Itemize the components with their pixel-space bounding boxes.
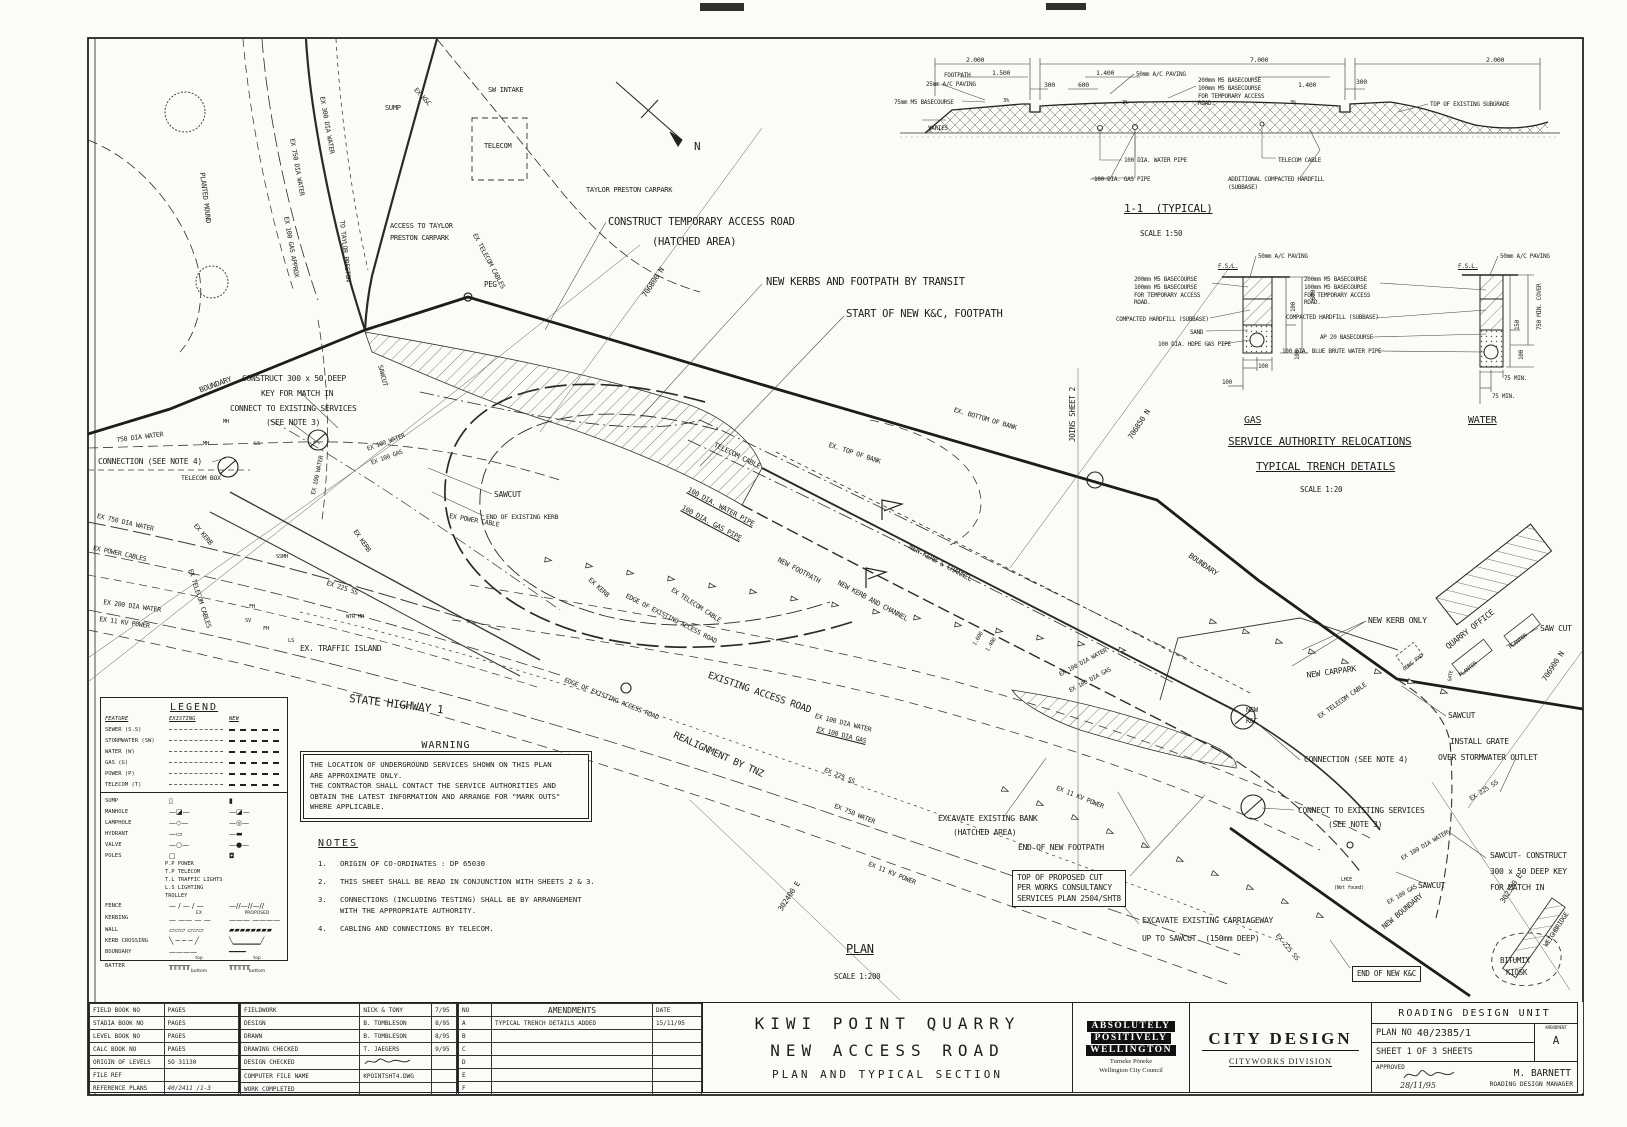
section-annotation: 2.000 bbox=[966, 56, 984, 64]
plan-annotation: EXCAVATE EXISTING CARRIAGEWAY bbox=[1142, 916, 1273, 926]
plan-annotation: KIOSK bbox=[1506, 968, 1527, 978]
legend-pattern-row: KERBINGEX— —— — —PROPOSED——— ———— bbox=[101, 912, 287, 925]
plan-annotation: LS bbox=[254, 441, 260, 448]
legend-existing-sample: ▱▱▱ ▱▱▱ bbox=[169, 926, 229, 934]
legend-feature: SEWER (S.S) bbox=[105, 727, 169, 733]
plan-annotation: SSMH bbox=[276, 554, 288, 561]
legend-sample-glyphs: ▰▰▰▰▰▰▰▰ bbox=[229, 926, 285, 934]
plan-annotation: CONSTRUCT TEMPORARY ACCESS ROAD bbox=[608, 216, 795, 230]
work-label: DESIGN bbox=[241, 1017, 360, 1030]
legend-line-row: TELECOM (T) bbox=[101, 779, 287, 790]
section-annotation: VARIES bbox=[928, 125, 948, 133]
section-annotation: 25mm A/C PAVING bbox=[926, 81, 976, 89]
plan-annotation: EX. TRAFFIC ISLAND bbox=[300, 644, 381, 654]
legend-existing-symbol: —○— bbox=[169, 841, 229, 849]
section-annotation: TELECOM CABLE bbox=[1278, 157, 1321, 165]
legend-pole-type: T.P TELECOM bbox=[165, 869, 287, 877]
plan-annotation: TOP OF PROPOSED CUT PER WORKS CONSULTANC… bbox=[1012, 870, 1126, 907]
plan-annotation: UP TO SAWCUT (150mm DEEP) bbox=[1142, 934, 1259, 944]
legend-poles-row: POLES□◘P.P POWERT.P TELECOMT.L TRAFFIC L… bbox=[101, 850, 287, 901]
plan-annotation: WTR MH bbox=[346, 614, 364, 621]
amendment-text bbox=[492, 1056, 653, 1069]
approved-date: 28/11/95 bbox=[1400, 1081, 1436, 1090]
design-office-box: CITY DESIGN CITYWORKS DIVISION bbox=[1190, 1002, 1372, 1093]
amendment-no: A bbox=[459, 1017, 492, 1030]
legend-existing-line-sample bbox=[169, 740, 223, 741]
amendment-no: B bbox=[459, 1030, 492, 1043]
work-date bbox=[432, 1056, 457, 1070]
record-value: PAGES bbox=[164, 1017, 239, 1030]
trench-annotation: 50mm A/C PAVING bbox=[1258, 253, 1308, 261]
legend-new-sample: —//—//—// bbox=[229, 902, 285, 910]
legend-new-symbol: —◎— bbox=[229, 819, 285, 827]
legend-feature: HYDRANT bbox=[105, 831, 169, 837]
legend-feature: FENCE bbox=[105, 903, 169, 909]
work-label: COMPUTER FILE NAME bbox=[241, 1070, 360, 1083]
amendment-date: 15/11/95 bbox=[653, 1017, 702, 1030]
notes-title: NOTES bbox=[318, 838, 618, 849]
trench-annotation: 100 DIA. HDPE GAS PIPE bbox=[1158, 341, 1231, 349]
work-label: DRAWING CHECKED bbox=[241, 1043, 360, 1056]
plan-annotation: N bbox=[694, 140, 700, 154]
trench-annotation: 200mm M5 BASECOURSE 100mm M5 BASECOURSE … bbox=[1304, 276, 1370, 307]
logo-line3: WELLINGTON bbox=[1086, 1045, 1176, 1056]
legend-poles-header: POLES□◘ bbox=[101, 850, 287, 861]
drawing-title-box: KIWI POINT QUARRY NEW ACCESS ROAD PLAN A… bbox=[703, 1002, 1073, 1093]
section-annotation: 100 DIA. GAS PIPE bbox=[1094, 176, 1150, 184]
section-annotation: 100 DIA. WATER PIPE bbox=[1124, 157, 1187, 165]
notes-items: 1.ORIGIN OF CO-ORDINATES : DP 650302.THI… bbox=[318, 859, 618, 934]
plan-annotation: FH bbox=[263, 626, 269, 633]
amendment-no: F bbox=[459, 1082, 492, 1095]
trench-annotation: 750 MIN. COVER bbox=[1536, 284, 1544, 330]
trench-annotation: 100 bbox=[1518, 350, 1526, 360]
amendment-text bbox=[492, 1082, 653, 1095]
plan-annotation: END OF NEW FOOTPATH bbox=[1018, 843, 1104, 853]
amendment-row: D bbox=[459, 1056, 702, 1069]
legend-pole-type: T.L TRAFFIC LIGHTS bbox=[165, 877, 287, 885]
warning-text: THE LOCATION OF UNDERGROUND SERVICES SHO… bbox=[303, 754, 589, 819]
note-number: 3. bbox=[318, 895, 340, 915]
logo-line2: POSITIVELY bbox=[1091, 1033, 1172, 1044]
plan-annotation: CONNECT TO EXISTING SERVICES bbox=[230, 404, 356, 414]
drawing-title-line2: NEW ACCESS ROAD bbox=[770, 1041, 1005, 1060]
logo-sub2: Wellington City Council bbox=[1099, 1067, 1163, 1075]
sheet-row: SHEET 1 OF 3 SHEETS bbox=[1372, 1042, 1534, 1061]
legend-title: LEGEND bbox=[101, 702, 287, 713]
legend-existing-symbol: —▭ bbox=[169, 830, 229, 838]
legend-sample-glyphs: —//—//—// bbox=[229, 902, 285, 910]
work-date: 9/95 bbox=[432, 1043, 457, 1056]
title-strip: FIELD BOOK NOPAGESSTADIA BOOK NOPAGESLEV… bbox=[88, 1002, 1583, 1093]
section-annotation: SCALE 1:50 bbox=[1140, 229, 1182, 239]
amendment-row: B bbox=[459, 1030, 702, 1043]
plan-no-row: PLAN NO 40/2385/1 bbox=[1372, 1024, 1534, 1042]
note-text: THIS SHEET SHALL BE READ IN CONJUNCTION … bbox=[340, 877, 618, 887]
legend-feature: LAMPHOLE bbox=[105, 820, 169, 826]
legend-sample-glyphs: — / — / — bbox=[169, 902, 229, 910]
legend-feature: MANHOLE bbox=[105, 809, 169, 815]
plan-annotation: KEY FOR MATCH IN bbox=[261, 389, 333, 399]
legend-feature: KERBING bbox=[105, 915, 169, 921]
plan-annotation: SAWCUT bbox=[1418, 881, 1445, 891]
record-row: FIELD BOOK NOPAGES bbox=[90, 1004, 239, 1017]
record-value bbox=[164, 1069, 239, 1082]
section-annotation: 3% bbox=[1122, 100, 1128, 107]
plan-annotation: CONNECTION (SEE NOTE 4) bbox=[1304, 755, 1408, 765]
record-row: REFERENCE PLANS40/2411 /1-3 bbox=[90, 1082, 239, 1095]
work-value: NICK & TONY bbox=[360, 1004, 432, 1017]
plan-annotation: PRESTON CARPARK bbox=[390, 234, 449, 243]
amendment-no: E bbox=[459, 1069, 492, 1082]
sheets-label: SHEETS bbox=[1442, 1047, 1473, 1057]
amendments-table: NOAMENDMENTSDATEATYPICAL TRENCH DETAILS … bbox=[458, 1002, 703, 1093]
section-annotation: 2.000 bbox=[1486, 56, 1504, 64]
drawing-title-line3: PLAN AND TYPICAL SECTION bbox=[772, 1068, 1003, 1081]
legend-feature: STORMWATER (SW) bbox=[105, 738, 169, 744]
design-office-division: CITYWORKS DIVISION bbox=[1229, 1057, 1332, 1067]
plan-annotation: SAWCUT bbox=[1448, 711, 1475, 721]
work-row: DESIGN CHECKED bbox=[241, 1056, 457, 1070]
legend-new-symbol: —◪— bbox=[229, 808, 285, 816]
work-date bbox=[432, 1083, 457, 1096]
plan-annotation: NEW KERBS AND FOOTPATH BY TRANSIT bbox=[766, 276, 965, 290]
legend-new-sample: top╥╥╥╥╥bottom bbox=[229, 957, 285, 974]
plan-annotation: SAWCUT bbox=[494, 490, 521, 500]
legend-new-sample: ▰▰▰▰▰▰▰▰ bbox=[229, 926, 285, 934]
plan-no-value: 40/2385/1 bbox=[1417, 1028, 1471, 1039]
approved-label: APPROVED bbox=[1376, 1064, 1405, 1071]
trench-annotation: 75 MIN. bbox=[1492, 393, 1515, 401]
legend-new-line-sample bbox=[229, 751, 279, 753]
legend-existing-sample: ╲ ─ ─ ─ ╱ bbox=[169, 937, 229, 945]
record-row: STADIA BOOK NOPAGES bbox=[90, 1017, 239, 1030]
plan-annotation: ACCESS TO TAYLOR bbox=[390, 222, 453, 231]
work-value bbox=[360, 1083, 432, 1096]
plan-annotation: START OF NEW K&C, FOOTPATH bbox=[846, 308, 1003, 322]
work-row: DRAWING CHECKEDT. JAEGERS9/95 bbox=[241, 1043, 457, 1056]
section-annotation: 1.500 bbox=[992, 69, 1010, 77]
record-value: PAGES bbox=[164, 1004, 239, 1017]
legend-line-row: WATER (W) bbox=[101, 746, 287, 757]
work-credits-table: FIELDWORKNICK & TONY7/95DESIGNB. TOMBLES… bbox=[240, 1002, 458, 1093]
sheet-number: 1 bbox=[1407, 1047, 1412, 1057]
amendment-value: A bbox=[1553, 1034, 1560, 1047]
record-row: CALC BOOK NOPAGES bbox=[90, 1043, 239, 1056]
registration-mark bbox=[700, 3, 744, 11]
work-value: T. JAEGERS bbox=[360, 1043, 432, 1056]
note-number: 4. bbox=[318, 924, 340, 934]
amendment-no: D bbox=[459, 1056, 492, 1069]
legend-existing-symbol: □ bbox=[169, 852, 229, 860]
plan-annotation: CONNECTION (SEE NOTE 4) bbox=[98, 457, 202, 467]
plan-annotation: JOINS SHEET 2 bbox=[1068, 387, 1078, 442]
plan-no-label: PLAN NO bbox=[1376, 1028, 1412, 1038]
record-label: FIELD BOOK NO bbox=[90, 1004, 165, 1017]
plan-annotation: SW INTAKE bbox=[488, 86, 523, 95]
record-value: PAGES bbox=[164, 1030, 239, 1043]
plan-annotation: INSTALL GRATE bbox=[1450, 737, 1509, 747]
work-date: 8/95 bbox=[432, 1017, 457, 1030]
note-text: ORIGIN OF CO-ORDINATES : DP 65030 bbox=[340, 859, 618, 869]
record-row: LEVEL BOOK NOPAGES bbox=[90, 1030, 239, 1043]
trench-annotation: 150 bbox=[1514, 320, 1522, 330]
legend-feature: BOUNDARY bbox=[105, 949, 169, 955]
legend-feature: SUMP bbox=[105, 798, 169, 804]
amendment-row: F bbox=[459, 1082, 702, 1095]
legend-pole-types: P.P POWERT.P TELECOMT.L TRAFFIC LIGHTSL.… bbox=[101, 861, 287, 901]
legend-feature: GAS (G) bbox=[105, 760, 169, 766]
trench-annotation: 100 DIA. BLUE BRUTE WATER PIPE bbox=[1282, 348, 1381, 356]
note-item: 3.CONNECTIONS (INCLUDING TESTING) SHALL … bbox=[318, 895, 618, 915]
section-annotation: 1.400 bbox=[1096, 69, 1114, 77]
trench-annotation: SAND bbox=[1190, 329, 1203, 337]
record-label: FILE REF bbox=[90, 1069, 165, 1082]
record-label: LEVEL BOOK NO bbox=[90, 1030, 165, 1043]
plan-annotation: SAW CUT bbox=[1540, 624, 1572, 634]
record-value: SO 31130 bbox=[164, 1056, 239, 1069]
legend-symbol-rows: SUMP▯▮MANHOLE—◪——◪—LAMPHOLE—◇——◎—HYDRANT… bbox=[101, 795, 287, 850]
trench-annotation: COMPACTED HARDFILL (SUBBASE) bbox=[1116, 316, 1209, 324]
work-row: WORK COMPLETED bbox=[241, 1083, 457, 1096]
legend-pole-type: L.S LIGHTING bbox=[165, 885, 287, 893]
legend-header-existing: EXISTING bbox=[169, 716, 229, 722]
record-books-table: FIELD BOOK NOPAGESSTADIA BOOK NOPAGESLEV… bbox=[88, 1002, 240, 1093]
work-label: DESIGN CHECKED bbox=[241, 1056, 360, 1070]
record-value: PAGES bbox=[164, 1043, 239, 1056]
trench-annotation: 100 bbox=[1290, 302, 1298, 312]
legend-sample-glyphs: ╲▁▁▁▁▁╱ bbox=[229, 937, 285, 945]
logo-sub1: Turneke Pōneke bbox=[1099, 1058, 1163, 1066]
legend-feature: POLES bbox=[105, 853, 169, 859]
legend-existing-line-sample bbox=[169, 784, 223, 785]
legend-sample-glyphs: ▱▱▱ ▱▱▱ bbox=[169, 926, 229, 934]
section-annotation: FOOTPATH bbox=[944, 72, 971, 80]
note-text: CABLING AND CONNECTIONS BY TELECOM. bbox=[340, 924, 618, 934]
legend-existing-symbol: —◪— bbox=[169, 808, 229, 816]
amendment-row: E bbox=[459, 1069, 702, 1082]
legend-new-line-sample bbox=[229, 773, 279, 775]
record-label: STADIA BOOK NO bbox=[90, 1017, 165, 1030]
note-item: 4.CABLING AND CONNECTIONS BY TELECOM. bbox=[318, 924, 618, 934]
work-row: FIELDWORKNICK & TONY7/95 bbox=[241, 1004, 457, 1017]
plan-number-box: ROADING DESIGN UNIT PLAN NO 40/2385/1 SH… bbox=[1372, 1002, 1578, 1093]
legend-sample-glyphs: — —— — — bbox=[169, 916, 229, 924]
gas-trench-detail bbox=[1206, 256, 1308, 390]
amendment-cell: AMENDMENT A bbox=[1534, 1024, 1577, 1061]
trench-annotation: GAS bbox=[1244, 414, 1261, 427]
plan-annotation: (SEE NOTE 3) bbox=[1328, 820, 1382, 830]
legend-symbol-row: LAMPHOLE—◇——◎— bbox=[101, 817, 287, 828]
legend-line-row: GAS (G) bbox=[101, 757, 287, 768]
plan-annotation: CONSTRUCT 300 x 50 DEEP bbox=[242, 374, 346, 384]
legend-pattern-row: BATTERtop╥╥╥╥╥bottomtop╥╥╥╥╥bottom bbox=[101, 957, 287, 974]
trench-annotation: TYPICAL TRENCH DETAILS bbox=[1256, 460, 1395, 474]
section-annotation: 3% bbox=[1290, 100, 1296, 107]
legend-sample-glyphs: ———— bbox=[169, 948, 229, 956]
legend-feature: KERB CROSSING bbox=[105, 938, 169, 944]
amendments-header: NOAMENDMENTSDATE bbox=[459, 1004, 702, 1017]
legend-sample-glyphs: ——— ———— bbox=[229, 916, 285, 924]
plan-annotation: TELECOM BOX bbox=[181, 474, 221, 482]
legend-existing-sample: EX— —— — — bbox=[169, 912, 229, 925]
amendment-date bbox=[653, 1056, 702, 1069]
record-label: CALC BOOK NO bbox=[90, 1043, 165, 1056]
legend-sample-glyphs: ━━━━ bbox=[229, 948, 285, 956]
legend-sample-sublabel: bottom bbox=[229, 970, 285, 975]
legend-pattern-row: WALL▱▱▱ ▱▱▱▰▰▰▰▰▰▰▰ bbox=[101, 924, 287, 935]
legend-feature: VALVE bbox=[105, 842, 169, 848]
work-value: B. TOMBLESON bbox=[360, 1030, 432, 1043]
amendment-row: C bbox=[459, 1043, 702, 1056]
work-value: B. TOMBLESON bbox=[360, 1017, 432, 1030]
trench-annotation: SCALE 1:20 bbox=[1300, 485, 1342, 495]
legend-feature: POWER (P) bbox=[105, 771, 169, 777]
sheet-border bbox=[88, 38, 1583, 1095]
record-label: ORIGIN OF LEVELS bbox=[90, 1056, 165, 1069]
plan-annotation: FH bbox=[249, 604, 255, 611]
legend-symbol-row: MANHOLE—◪——◪— bbox=[101, 806, 287, 817]
trench-annotation: F.S.L. bbox=[1218, 263, 1238, 271]
plan-annotation: SUMP bbox=[385, 104, 401, 113]
amendment-row: ATYPICAL TRENCH DETAILS ADDED15/11/95 bbox=[459, 1017, 702, 1030]
notes-block: NOTES 1.ORIGIN OF CO-ORDINATES : DP 6503… bbox=[318, 838, 618, 942]
note-text: CONNECTIONS (INCLUDING TESTING) SHALL BE… bbox=[340, 895, 618, 915]
legend-new-symbol: ◘ bbox=[229, 852, 285, 860]
approved-name: M. BARNETT bbox=[1514, 1068, 1571, 1079]
legend-new-symbol: ▮ bbox=[229, 797, 285, 805]
section-annotation: 300 bbox=[1356, 78, 1367, 86]
trench-annotation: SERVICE AUTHORITY RELOCATIONS bbox=[1228, 435, 1411, 449]
work-value: KPOINTSHT4.DWG bbox=[360, 1070, 432, 1083]
warning-title: WARNING bbox=[303, 740, 589, 751]
legend-new-line-sample bbox=[229, 762, 279, 764]
council-logo: ABSOLUTELY POSITIVELY WELLINGTON Turneke… bbox=[1073, 1002, 1190, 1093]
plan-annotation: (Not found) bbox=[1334, 885, 1364, 892]
note-item: 2.THIS SHEET SHALL BE READ IN CONJUNCTIO… bbox=[318, 877, 618, 887]
legend-feature: WALL bbox=[105, 927, 169, 933]
plan-annotation: EXCAVATE EXISTING BANK bbox=[938, 814, 1037, 824]
work-label: FIELDWORK bbox=[241, 1004, 360, 1017]
section-annotation: 75mm M5 BASECOURSE bbox=[894, 99, 954, 107]
trench-annotation: 100 bbox=[1258, 363, 1268, 371]
legend-pole-type: P.P POWER bbox=[165, 861, 287, 869]
amendment-date bbox=[653, 1043, 702, 1056]
legend-box: LEGEND FEATURE EXISTING NEW SEWER (S.S)S… bbox=[100, 697, 288, 961]
work-label: WORK COMPLETED bbox=[241, 1083, 360, 1096]
warning-block: WARNING THE LOCATION OF UNDERGROUND SERV… bbox=[303, 740, 589, 819]
plan-annotation: LS bbox=[288, 638, 294, 645]
trench-annotation: WATER bbox=[1468, 414, 1497, 427]
legend-new-line-sample bbox=[229, 740, 279, 742]
plan-annotation: TELECOM bbox=[484, 142, 511, 151]
quarry-office-building bbox=[1436, 524, 1551, 625]
unit-name: ROADING DESIGN UNIT bbox=[1372, 1003, 1577, 1024]
section-annotation: ADDITIONAL COMPACTED HARDFILL (SUBBASE) bbox=[1228, 176, 1324, 192]
approved-title: ROADING DESIGN MANAGER bbox=[1490, 1081, 1573, 1088]
section-annotation: 50mm A/C PAVING bbox=[1136, 71, 1186, 79]
legend-new-line-sample bbox=[229, 784, 279, 786]
legend-new-line-sample bbox=[229, 729, 279, 731]
legend-symbol-row: HYDRANT—▭—▬ bbox=[101, 828, 287, 839]
plan-annotation: CONNECT TO EXISTING SERVICES bbox=[1298, 806, 1424, 816]
north-arrow bbox=[616, 82, 682, 146]
note-item: 1.ORIGIN OF CO-ORDINATES : DP 65030 bbox=[318, 859, 618, 869]
plan-annotation: SCALE 1:200 bbox=[834, 972, 880, 982]
work-label: DRAWN bbox=[241, 1030, 360, 1043]
note-number: 1. bbox=[318, 859, 340, 869]
record-value: 40/2411 /1-3 bbox=[164, 1082, 239, 1095]
legend-existing-sample: — / — / — bbox=[169, 902, 229, 910]
amendment-text bbox=[492, 1043, 653, 1056]
legend-symbol-row: SUMP▯▮ bbox=[101, 795, 287, 806]
legend-feature: TELECOM (T) bbox=[105, 782, 169, 788]
legend-header-feature: FEATURE bbox=[105, 716, 169, 722]
work-date: 7/95 bbox=[432, 1004, 457, 1017]
section-annotation: 300 bbox=[1044, 81, 1055, 89]
legend-new-sample: PROPOSED——— ———— bbox=[229, 912, 285, 925]
trench-annotation: AP 20 BASECOURSE bbox=[1320, 334, 1373, 342]
legend-pole-type: TROLLEY bbox=[165, 893, 287, 901]
record-row: FILE REF bbox=[90, 1069, 239, 1082]
plan-annotation: SV bbox=[245, 618, 251, 625]
amendment-date bbox=[653, 1030, 702, 1043]
legend-line-row: STORMWATER (SW) bbox=[101, 735, 287, 746]
legend-existing-line-sample bbox=[169, 751, 223, 752]
legend-new-sample: ╲▁▁▁▁▁╱ bbox=[229, 937, 285, 945]
work-row: DESIGNB. TOMBLESON8/95 bbox=[241, 1017, 457, 1030]
section-annotation: 200mm M5 BASECOURSE 100mm M5 BASECOURSE … bbox=[1198, 77, 1264, 108]
legend-line-row: SEWER (S.S) bbox=[101, 724, 287, 735]
trench-annotation: 50mm A/C PAVING bbox=[1500, 253, 1550, 261]
sheet-count: 3 bbox=[1432, 1047, 1437, 1057]
plan-annotation: SAWCUT- CONSTRUCT bbox=[1490, 851, 1567, 861]
legend-existing-sample: ———— bbox=[169, 948, 229, 956]
plan-annotation: PLAN bbox=[846, 942, 874, 958]
legend-new-sample: ━━━━ bbox=[229, 948, 285, 956]
logo-line1: ABSOLUTELY bbox=[1087, 1021, 1174, 1032]
logo-subtitle: Turneke Pōneke Wellington City Council bbox=[1099, 1058, 1163, 1074]
section-annotation: 1.400 bbox=[1298, 81, 1316, 89]
legend-line-row: POWER (P) bbox=[101, 768, 287, 779]
legend-existing-symbol: —◇— bbox=[169, 819, 229, 827]
amendment-date bbox=[653, 1069, 702, 1082]
amendment-label: AMENDMENT bbox=[1545, 1025, 1567, 1030]
note-number: 2. bbox=[318, 877, 340, 887]
legend-header: FEATURE EXISTING NEW bbox=[101, 716, 287, 722]
legend-new-symbol: —●— bbox=[229, 841, 285, 849]
section-annotation: TOP OF EXISTING SUBGRADE bbox=[1430, 101, 1510, 109]
drawing-title-line1: KIWI POINT QUARRY bbox=[755, 1014, 1021, 1033]
registration-mark bbox=[1046, 3, 1086, 10]
plan-annotation: K&C bbox=[1246, 717, 1258, 726]
legend-pattern-row: KERB CROSSING╲ ─ ─ ─ ╱╲▁▁▁▁▁╱ bbox=[101, 935, 287, 946]
section-annotation: 1-1 (TYPICAL) bbox=[1124, 202, 1213, 216]
section-annotation: 7.000 bbox=[1250, 56, 1268, 64]
record-label: REFERENCE PLANS bbox=[90, 1082, 165, 1095]
amendment-date bbox=[653, 1082, 702, 1095]
plan-annotation: BITUMIX bbox=[1500, 956, 1530, 966]
of-label: OF bbox=[1417, 1047, 1427, 1057]
trench-annotation: 100 bbox=[1222, 379, 1232, 387]
legend-sample-glyphs: ╲ ─ ─ ─ ╱ bbox=[169, 937, 229, 945]
plan-annotation: TAYLOR PRESTON CARPARK bbox=[586, 186, 672, 195]
plan-annotation: NEW bbox=[1246, 706, 1258, 715]
plan-annotation: (SEE NOTE 3) bbox=[266, 418, 320, 428]
plan-annotation: LHCE bbox=[1341, 877, 1352, 884]
legend-existing-line-sample bbox=[169, 773, 223, 774]
legend-existing-symbol: ▯ bbox=[169, 797, 229, 805]
